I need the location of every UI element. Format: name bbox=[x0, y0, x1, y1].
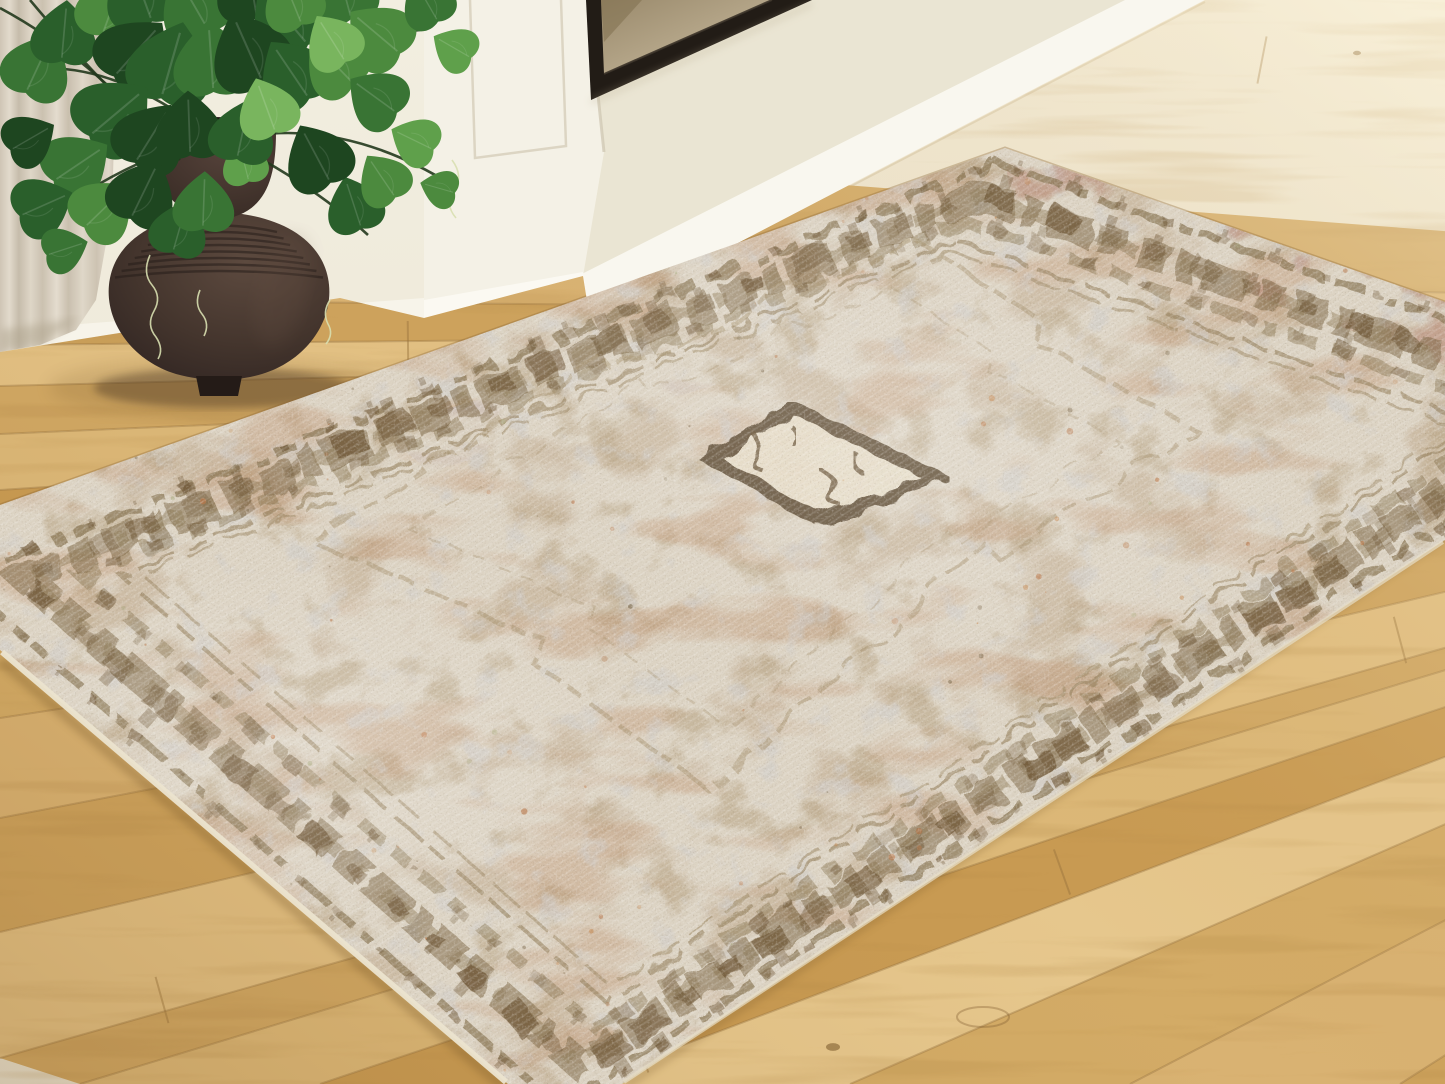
room-photo bbox=[0, 0, 1445, 1084]
scene-canvas bbox=[0, 0, 1445, 1084]
vase-foot bbox=[196, 376, 242, 396]
